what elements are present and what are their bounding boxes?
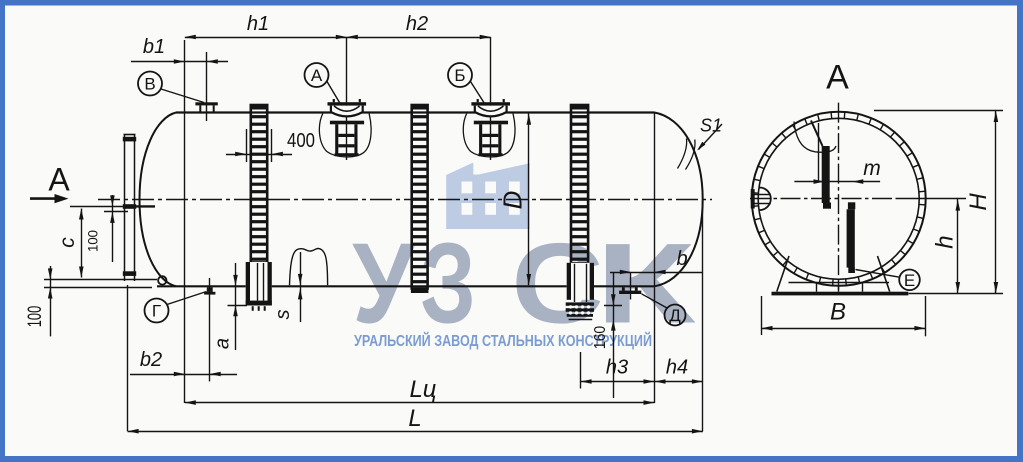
svg-text:h4: h4 [666,357,688,379]
svg-text:У: У [352,220,416,347]
svg-text:А: А [826,59,849,97]
svg-text:m: m [863,157,881,180]
svg-text:Lц: Lц [409,376,436,403]
svg-text:b1: b1 [143,36,165,58]
svg-text:К: К [595,219,696,346]
svg-text:s: s [272,310,294,320]
svg-text:h2: h2 [406,13,428,35]
svg-text:Д: Д [669,306,681,325]
svg-text:А: А [48,162,70,198]
svg-text:S1: S1 [700,116,722,136]
svg-text:a: a [212,338,234,349]
svg-text:400: 400 [287,130,315,152]
svg-text:h: h [932,235,959,248]
svg-text:Е: Е [904,271,915,290]
svg-text:h1: h1 [247,13,269,35]
svg-text:100: 100 [25,306,46,328]
svg-text:D: D [498,191,528,210]
svg-text:В: В [144,75,155,94]
svg-text:100: 100 [85,230,101,252]
svg-text:b: b [676,248,687,270]
svg-text:b2: b2 [140,349,162,371]
svg-text:L: L [408,405,421,432]
svg-text:В: В [830,299,846,326]
svg-text:H: H [965,193,992,211]
svg-text:А: А [311,66,323,85]
svg-text:160: 160 [592,326,609,350]
svg-text:Г: Г [152,302,161,321]
svg-text:h3: h3 [606,357,628,379]
svg-text:c: c [56,237,79,248]
svg-text:Б: Б [454,66,465,85]
